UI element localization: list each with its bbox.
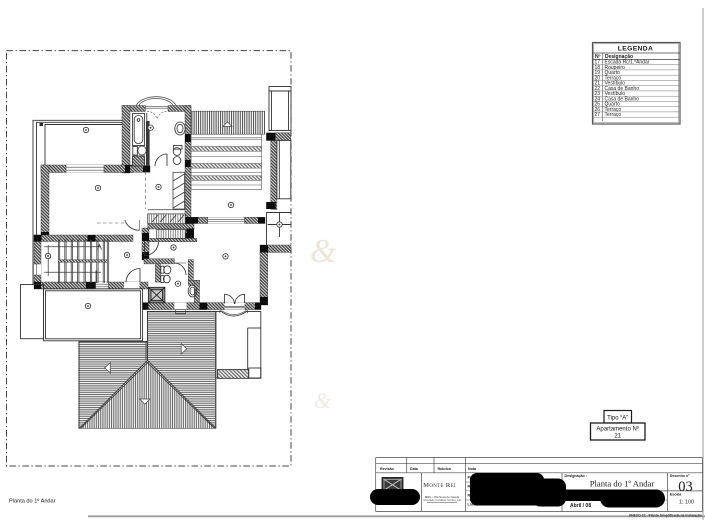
svg-text:Rubrica: Rubrica (438, 467, 452, 471)
svg-text:MONTE REI: MONTE REI (423, 482, 456, 489)
svg-text:Planta do 1º Andar: Planta do 1º Andar (9, 498, 56, 505)
svg-text:Revisão: Revisão (380, 467, 395, 471)
svg-text:&: & (314, 388, 332, 413)
svg-text:1: 100: 1: 100 (679, 500, 694, 506)
svg-text:&: & (310, 233, 337, 270)
svg-text:Data: Data (410, 467, 419, 471)
svg-text:Abril / 08: Abril / 08 (570, 503, 591, 509)
svg-text:21: 21 (614, 434, 621, 440)
svg-text:Apartamento Nº: Apartamento Nº (596, 426, 639, 433)
svg-text:Sociedade Imobiliária Turistic: Sociedade Imobiliária Turistica, Lda (423, 499, 461, 502)
svg-text:Planta do 1º Andar: Planta do 1º Andar (590, 479, 655, 489)
svg-text:Designação :: Designação : (565, 474, 587, 478)
svg-text:ANEXO 02 - Planta Simplificada: ANEXO 02 - Planta Simplificada da Instal… (629, 514, 702, 518)
svg-text:Tipo “A”: Tipo “A” (607, 416, 628, 422)
svg-text:Nota: Nota (468, 467, 477, 471)
svg-text:LEGENDA: LEGENDA (618, 46, 654, 53)
svg-text:Desenho nº: Desenho nº (670, 474, 690, 478)
svg-text:03: 03 (678, 479, 693, 495)
